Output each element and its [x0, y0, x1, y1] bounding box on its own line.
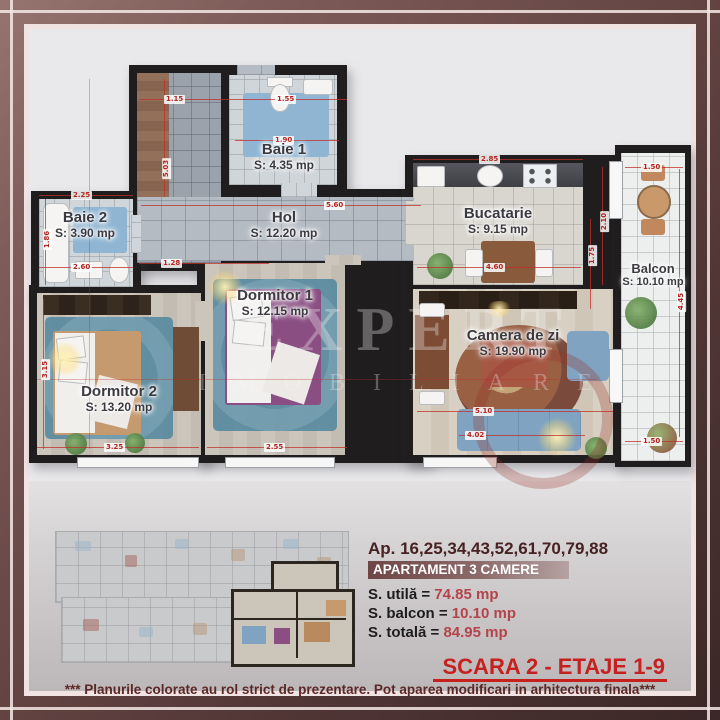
balcony-table — [637, 185, 671, 219]
dimension-label: 3.25 — [104, 443, 125, 452]
mini-wall — [234, 618, 346, 620]
chair — [641, 219, 665, 235]
mini-room — [139, 627, 153, 637]
balcony-door — [609, 161, 623, 219]
watermark-ring — [473, 349, 613, 489]
room-name: Bucatarie — [413, 205, 583, 222]
room-name: Baie 2 — [35, 209, 135, 226]
room-area: S: 12.20 mp — [209, 226, 359, 240]
dimension-line — [37, 379, 597, 380]
dimension-label: 3.15 — [41, 359, 50, 380]
room-area: S: 9.15 mp — [413, 222, 583, 236]
mini-room — [274, 628, 290, 644]
mini-room — [326, 600, 346, 616]
apartment-type-bar: APARTAMENT 3 CAMERE — [368, 561, 569, 579]
dimension-label: 1.15 — [164, 95, 185, 104]
dormitor1-window — [225, 457, 335, 468]
room-area: S: 19.90 mp — [413, 344, 613, 358]
area-summary: S. utilă = 74.85 mp S. balcon = 10.10 mp… — [368, 585, 516, 642]
sink — [303, 79, 333, 95]
room-label-balcon: Balcon S: 10.10 mp — [617, 261, 689, 289]
room-label-baie2: Baie 2 S: 3.90 mp — [35, 209, 135, 240]
room-label-camera-de-zi: Camera de zi S: 19.90 mp — [413, 327, 613, 358]
room-name: Dormitor 1 — [205, 287, 345, 304]
room-name: Camera de zi — [413, 327, 613, 344]
dimension-label: 4.60 — [484, 263, 505, 272]
pillow — [232, 319, 266, 346]
mini-room — [83, 619, 99, 631]
room-name: Dormitor 2 — [37, 383, 201, 400]
plant — [625, 297, 657, 329]
stove — [523, 164, 557, 188]
fridge — [417, 166, 445, 187]
dimension-label: 2.55 — [264, 443, 285, 452]
dimension-label: 1.55 — [275, 95, 296, 104]
plant — [427, 253, 453, 279]
mini-room — [231, 549, 245, 561]
room-name: Balcon — [617, 261, 689, 276]
area-value: 84.95 mp — [443, 624, 507, 641]
room-label-dormitor2: Dormitor 2 S: 13.20 mp — [37, 383, 201, 414]
dimension-label: 5.03 — [162, 158, 171, 179]
area-value: 10.10 mp — [452, 605, 516, 622]
chair — [419, 303, 445, 317]
apartment-numbers: Ap. 16,25,34,43,52,61,70,79,88 — [368, 539, 608, 559]
frame-stripe-bottom — [0, 707, 720, 710]
main-floor-plan: EXPERT IMOBILIARE — [29, 49, 691, 489]
mini-room — [242, 626, 266, 644]
area-value: 74.85 mp — [434, 586, 498, 603]
mini-floor-plan — [55, 527, 351, 667]
area-row-utila: S. utilă = 74.85 mp — [368, 585, 516, 604]
area-label: S. balcon = — [368, 605, 448, 622]
kitchen-table — [481, 241, 535, 283]
room-label-bucatarie: Bucatarie S: 9.15 mp — [413, 205, 583, 236]
area-label: S. totală = — [368, 624, 439, 641]
area-row-balcon: S. balcon = 10.10 mp — [368, 604, 516, 623]
chair — [465, 249, 483, 277]
dimension-line — [139, 263, 269, 264]
dimension-line — [417, 411, 613, 412]
frame-stripe-left — [10, 0, 13, 720]
plant — [65, 433, 87, 455]
mini-room — [125, 555, 137, 567]
room-label-baie1: Baie 1 S: 4.35 mp — [229, 141, 339, 172]
dimension-label: 1.50 — [641, 163, 662, 172]
dimension-line — [141, 205, 421, 206]
mini-room — [193, 623, 207, 635]
area-row-totala: S. totală = 84.95 mp — [368, 623, 516, 642]
frame-stripe-top — [0, 10, 720, 13]
room-area: S: 4.35 mp — [229, 158, 339, 172]
disclaimer-text: *** Planurile colorate au rol strict de … — [29, 682, 691, 697]
dormitor1-door — [325, 255, 361, 265]
room-area: S: 10.10 mp — [617, 276, 689, 289]
frame-stripe-right — [707, 0, 710, 720]
room-name: Baie 1 — [229, 141, 339, 158]
room-label-hol: Hol S: 12.20 mp — [209, 209, 359, 240]
dimension-label: 5.10 — [473, 407, 494, 416]
plant — [125, 433, 145, 453]
room-name: Hol — [209, 209, 359, 226]
mini-room — [75, 541, 91, 551]
ceiling-light — [485, 301, 513, 317]
dimension-label: 1.28 — [161, 259, 182, 268]
flyer-canvas: EXPERT IMOBILIARE — [0, 0, 720, 720]
mini-room — [304, 622, 330, 642]
room-area: S: 3.90 mp — [35, 226, 135, 240]
dimension-label: 4.45 — [677, 291, 686, 312]
dimension-label: 1.75 — [588, 245, 597, 266]
kitchen-sink — [477, 165, 503, 187]
scara-etaje-title: SCARA 2 - ETAJE 1-9 — [433, 656, 668, 682]
dimension-label: 2.85 — [479, 155, 500, 164]
mini-room — [175, 539, 189, 549]
dormitor2-window — [77, 457, 199, 468]
baie1-door — [281, 183, 317, 197]
content-area: EXPERT IMOBILIARE — [24, 24, 696, 696]
chair — [419, 391, 445, 405]
entrance-door — [237, 65, 275, 75]
toilet — [109, 257, 129, 283]
mini-room — [283, 539, 299, 549]
dimension-label: 4.02 — [465, 431, 486, 440]
wardrobe — [43, 295, 151, 315]
chair — [535, 249, 553, 277]
ceiling-light — [47, 341, 83, 377]
room-label-dormitor1: Dormitor 1 S: 12.15 mp — [205, 287, 345, 318]
dimension-label: 2.10 — [600, 211, 609, 232]
area-label: S. utilă = — [368, 586, 430, 603]
highlighted-apartment — [231, 589, 355, 667]
room-area: S: 13.20 mp — [37, 400, 201, 414]
room-area: S: 12.15 mp — [205, 304, 345, 318]
dimension-label: 2.60 — [71, 263, 92, 272]
dimension-label: 2.25 — [71, 191, 92, 200]
dimension-label: 1.50 — [641, 437, 662, 446]
mini-wall — [296, 592, 298, 658]
